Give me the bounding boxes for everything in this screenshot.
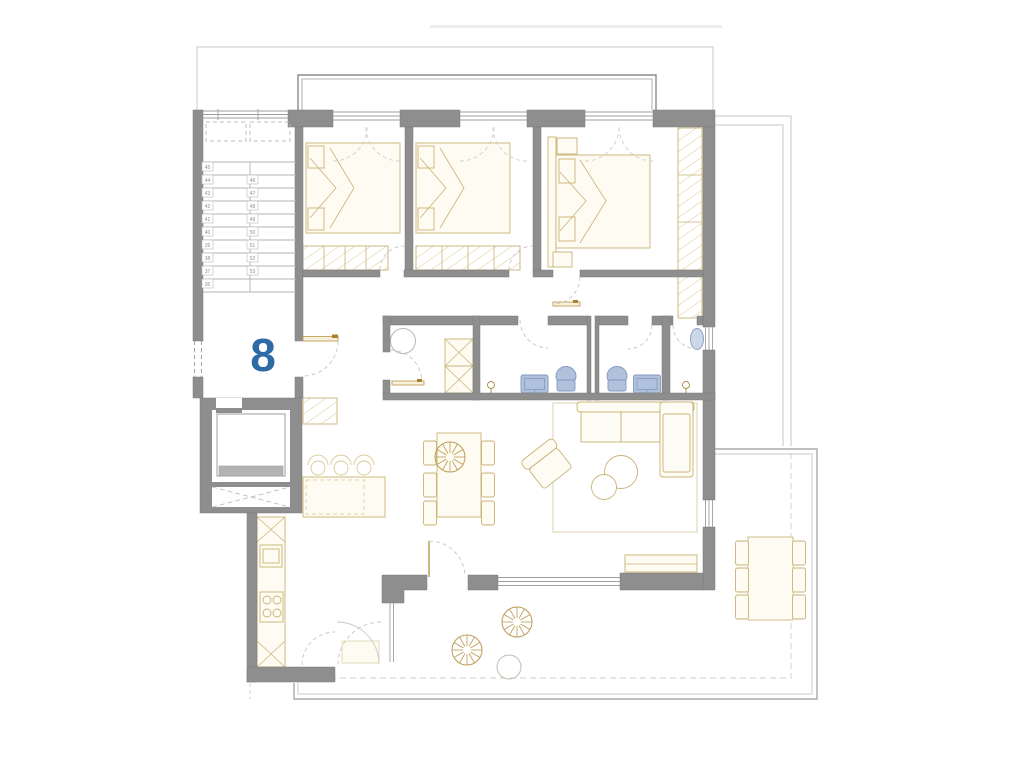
stair-step-number: 52	[250, 256, 256, 262]
stair-landing-dashed	[250, 122, 290, 141]
chair-icon	[424, 441, 437, 465]
outdoor-chair-icon	[793, 541, 806, 565]
bidet-icon	[521, 375, 548, 393]
door-handle-icon	[332, 335, 338, 339]
wardrobe-icon	[303, 246, 388, 270]
stair-landing-dashed	[206, 122, 246, 141]
bench-icon	[553, 252, 572, 267]
wall-bed2-bed3	[533, 127, 541, 270]
outdoor-chair-icon	[736, 541, 749, 565]
stair-step-number: 53	[250, 269, 256, 275]
chair-icon	[482, 501, 495, 525]
door-swing-arc-icon	[628, 325, 652, 349]
wall-pier-top-4	[653, 110, 715, 127]
wall-kitchen-west	[247, 513, 257, 682]
elevator-door-icon	[216, 408, 242, 413]
stairwell-open-edge-dashed	[195, 341, 202, 377]
roof-faint-line	[430, 25, 722, 28]
wall-kitchen-south	[247, 667, 335, 682]
kitchen-island	[303, 455, 385, 517]
window-stairs	[203, 109, 288, 120]
shower-cabinet-icon	[445, 339, 473, 393]
door-swing-arc-icon	[302, 632, 335, 665]
stair-step-number: 37	[205, 269, 211, 275]
glazing-kitchen-east	[390, 603, 394, 662]
bedroom-1	[303, 143, 400, 270]
right-walkway-outline	[715, 116, 791, 446]
stair-numbers-left: 45 44 43 42 41 40 39 38 37 36	[202, 162, 213, 288]
nightstand-icon	[557, 138, 577, 154]
staircase: 45 44 43 42 41 40 39 38 37 36 46 47 48 4…	[195, 122, 297, 377]
door-handle-icon	[417, 379, 422, 382]
stair-step-number: 50	[250, 230, 256, 236]
living-area	[520, 402, 697, 572]
door-swing-arc-icon	[390, 350, 422, 382]
wall-hall-west-stub	[295, 377, 303, 398]
wall-east-upper	[703, 127, 715, 327]
wall-stair-west	[193, 110, 203, 341]
floor-drain-icon	[683, 382, 690, 394]
wall-pier-south	[468, 575, 498, 590]
terrace-plant-icon	[502, 607, 532, 637]
terrace-door-living	[429, 541, 465, 577]
stair-step-number: 44	[205, 178, 211, 184]
window-bedroom-2	[460, 112, 527, 120]
wall-pier-top-3	[527, 110, 585, 127]
window-bathroom-3	[706, 327, 713, 350]
stair-step-number: 43	[205, 191, 211, 197]
washbasin-icon	[691, 329, 704, 350]
double-bed-icon	[416, 143, 510, 233]
stair-step-number: 41	[205, 217, 211, 223]
chair-icon	[424, 473, 437, 497]
chair-icon	[482, 441, 495, 465]
coat-closet-icon	[303, 398, 337, 424]
terrace-plant-icon	[452, 635, 482, 665]
stair-numbers-right: 46 47 48 49 50 51 52 53	[247, 175, 258, 275]
wall-east-lower	[703, 527, 715, 590]
unit-number-label: 8	[250, 329, 276, 381]
outdoor-chair-icon	[736, 568, 749, 592]
door-swing-arc-icon	[520, 320, 548, 348]
outdoor-chair-icon	[793, 595, 806, 619]
wall-bath-south	[383, 393, 715, 400]
door-handle-icon	[573, 300, 578, 303]
stair-step-number: 45	[205, 165, 211, 171]
entry-door	[303, 335, 338, 377]
wall-bath-north-a	[383, 316, 518, 325]
tall-wardrobe-icon	[678, 128, 702, 318]
round-basin-icon	[391, 329, 416, 354]
wall-bath-west-upper	[383, 316, 390, 352]
window-living-south	[498, 578, 620, 586]
double-bed-icon	[306, 143, 400, 233]
upper-balcony-outline	[298, 75, 656, 110]
wall-east-middle	[703, 350, 715, 500]
stair-step-number: 48	[250, 204, 256, 210]
floor-plan-canvas: 45 44 43 42 41 40 39 38 37 36 46 47 48 4…	[0, 0, 1024, 768]
terrace-table-icon	[497, 655, 521, 679]
wall-pier-top-1	[288, 110, 333, 127]
wall-bed2-south	[404, 270, 509, 277]
stair-step-number: 47	[250, 191, 256, 197]
wall-bed1-south	[303, 270, 380, 277]
bidet-icon	[634, 375, 661, 393]
doormat-icon	[342, 641, 379, 663]
window-living-east	[706, 500, 713, 527]
stair-step-number: 49	[250, 217, 256, 223]
chair-icon	[424, 501, 437, 525]
terrace-bottom	[342, 607, 532, 679]
bedroom-2	[416, 143, 520, 270]
toilet-icon	[556, 367, 576, 392]
wall-bed3-south-b	[580, 270, 703, 277]
wall-bed3-south-a	[533, 270, 553, 277]
stair-step-number: 40	[205, 230, 211, 236]
wall-corner-south	[382, 575, 427, 603]
stair-step-number: 39	[205, 243, 211, 249]
wall-bath-divider-1	[473, 316, 480, 400]
door-swing-arc-icon	[303, 341, 338, 376]
floor-drain-icon	[488, 382, 495, 394]
bedroom-3	[548, 128, 702, 318]
floor-plan-svg: 45 44 43 42 41 40 39 38 37 36 46 47 48 4…	[0, 0, 1024, 768]
outdoor-chair-icon	[736, 595, 749, 619]
stair-step-number: 36	[205, 282, 211, 288]
wall-living-south	[620, 573, 703, 590]
kitchen-counter	[257, 517, 285, 667]
wall-hall-west	[295, 127, 303, 341]
outdoor-chair-icon	[793, 568, 806, 592]
window-bedroom-1	[333, 112, 400, 120]
sideboard-icon	[625, 555, 697, 572]
wall-shaft-a	[587, 316, 591, 400]
wall-bath-north-e	[697, 316, 703, 325]
stair-step-number: 46	[250, 178, 256, 184]
door-swing-arc-icon	[553, 277, 580, 304]
stair-step-number: 38	[205, 256, 211, 262]
elevator	[212, 398, 290, 507]
bathroom-3	[683, 329, 704, 394]
armchair-icon	[520, 438, 574, 491]
roof-outline	[197, 25, 722, 110]
elevator-counterweight	[219, 466, 283, 476]
bedroom-3-door	[553, 277, 580, 306]
chair-icon	[482, 473, 495, 497]
door-swing-arc-icon	[429, 541, 465, 577]
outdoor-table-icon	[748, 537, 793, 620]
island-outline	[303, 477, 385, 517]
coffee-table-icon	[592, 475, 617, 500]
wall-bath-divider-2	[662, 316, 670, 400]
terrace-right	[736, 537, 806, 620]
window-bedroom-3	[585, 112, 653, 120]
stool-icons	[308, 455, 374, 475]
wall-bath-north-c	[597, 316, 628, 325]
headboard-icon	[548, 137, 556, 267]
stair-step-number: 42	[205, 204, 211, 210]
wall-shaft-b	[595, 316, 599, 400]
double-bed-icon	[556, 155, 650, 248]
stair-step-number: 51	[250, 243, 256, 249]
bathroom-2	[607, 367, 661, 394]
toilet-icon	[607, 367, 627, 392]
bathroom-1	[488, 367, 577, 394]
wall-bed1-bed2	[405, 127, 413, 270]
dining-area	[424, 433, 495, 525]
wall-pier-top-2	[400, 110, 460, 127]
laundry-door	[390, 350, 424, 385]
site-boundary-line	[197, 47, 713, 110]
wall-stair-west-stub	[193, 377, 203, 398]
wall-bath-north-b	[548, 316, 588, 325]
